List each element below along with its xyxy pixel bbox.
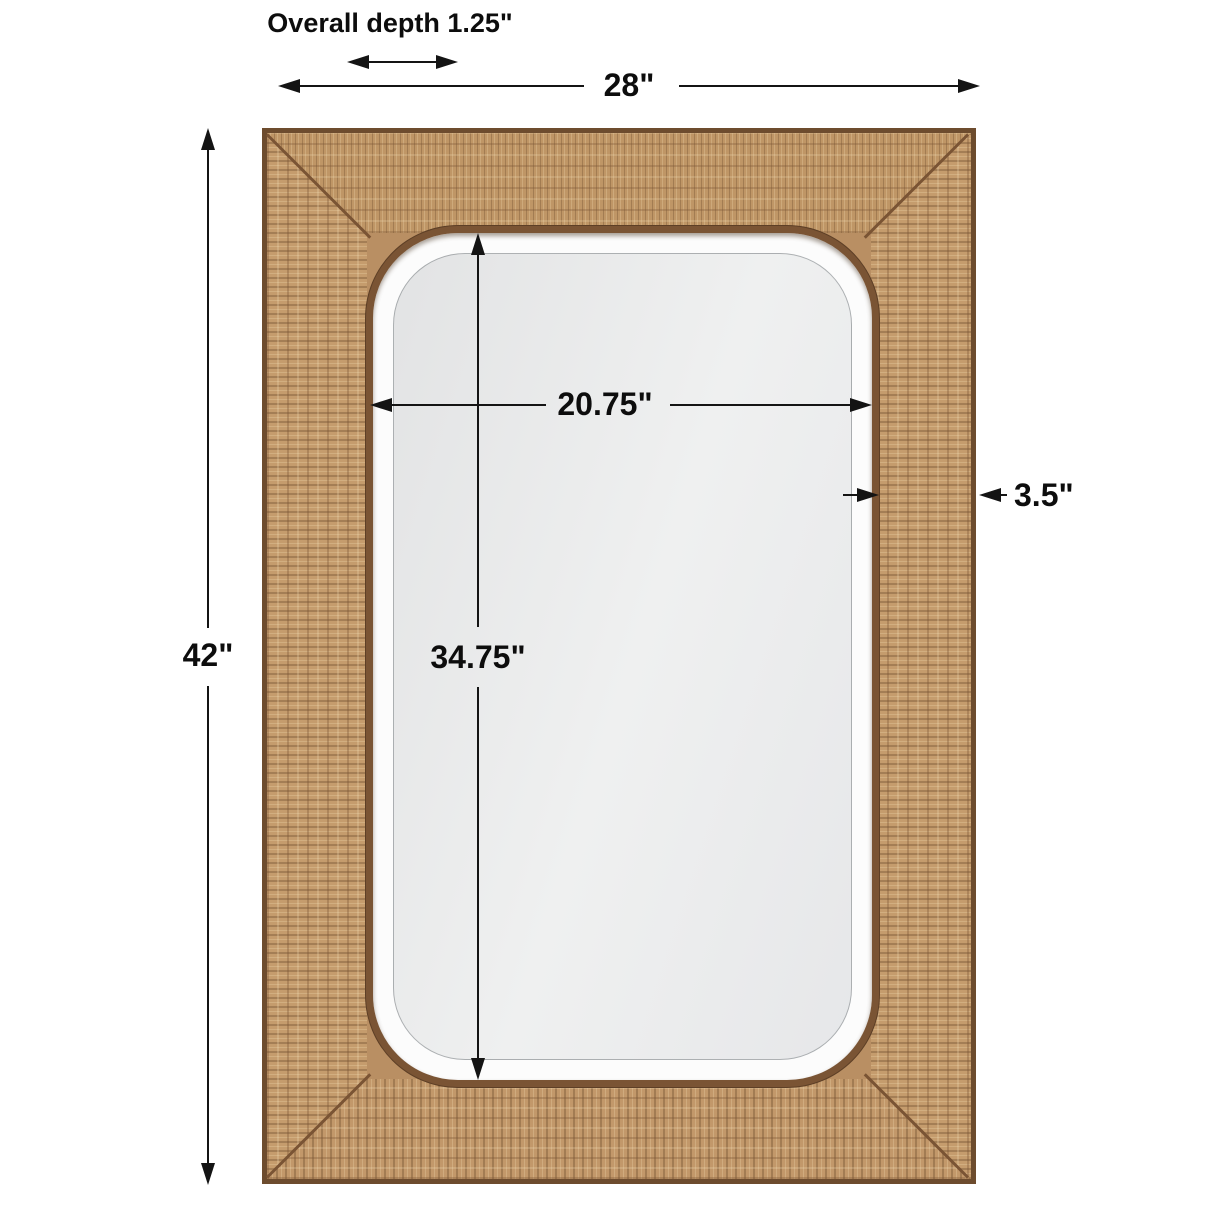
arrowhead-right-icon	[857, 488, 879, 502]
arrowhead-down-icon	[471, 1058, 485, 1080]
dimension-line-segment	[477, 255, 479, 627]
dimension-line-segment	[477, 687, 479, 1058]
mirror-width-label: 20.75"	[540, 385, 670, 423]
arrowhead-up-icon	[471, 233, 485, 255]
mirror-frame	[262, 128, 976, 1184]
overall-depth-label: Overall depth 1.25"	[240, 6, 540, 40]
dimension-line-segment	[207, 686, 209, 1163]
depth-dimension-line	[367, 61, 439, 63]
frame-thickness-label: 3.5"	[1014, 476, 1104, 514]
dimension-line-segment	[390, 404, 546, 406]
arrowhead-left-icon	[278, 79, 300, 93]
diagram-canvas: Overall depth 1.25" 28" 42"	[0, 0, 1214, 1214]
dimension-line-segment	[670, 404, 852, 406]
rattan-frame-surface	[267, 133, 971, 1179]
overall-height-label: 42"	[158, 636, 258, 674]
arrowhead-right-icon	[958, 79, 980, 93]
dimension-line-segment	[298, 85, 584, 87]
mirror-height-label: 34.75"	[403, 638, 553, 676]
arrowhead-up-icon	[201, 128, 215, 150]
arrowhead-left-icon	[979, 488, 1001, 502]
arrowhead-left-icon	[347, 55, 369, 69]
arrowhead-down-icon	[201, 1163, 215, 1185]
arrowhead-left-icon	[370, 398, 392, 412]
overall-width-label: 28"	[579, 66, 679, 104]
dimension-line-segment	[843, 494, 857, 496]
arrowhead-right-icon	[436, 55, 458, 69]
arrowhead-right-icon	[850, 398, 872, 412]
dimension-line-segment	[207, 150, 209, 628]
dimension-line-segment	[679, 85, 960, 87]
dimension-line-segment	[1001, 494, 1007, 496]
